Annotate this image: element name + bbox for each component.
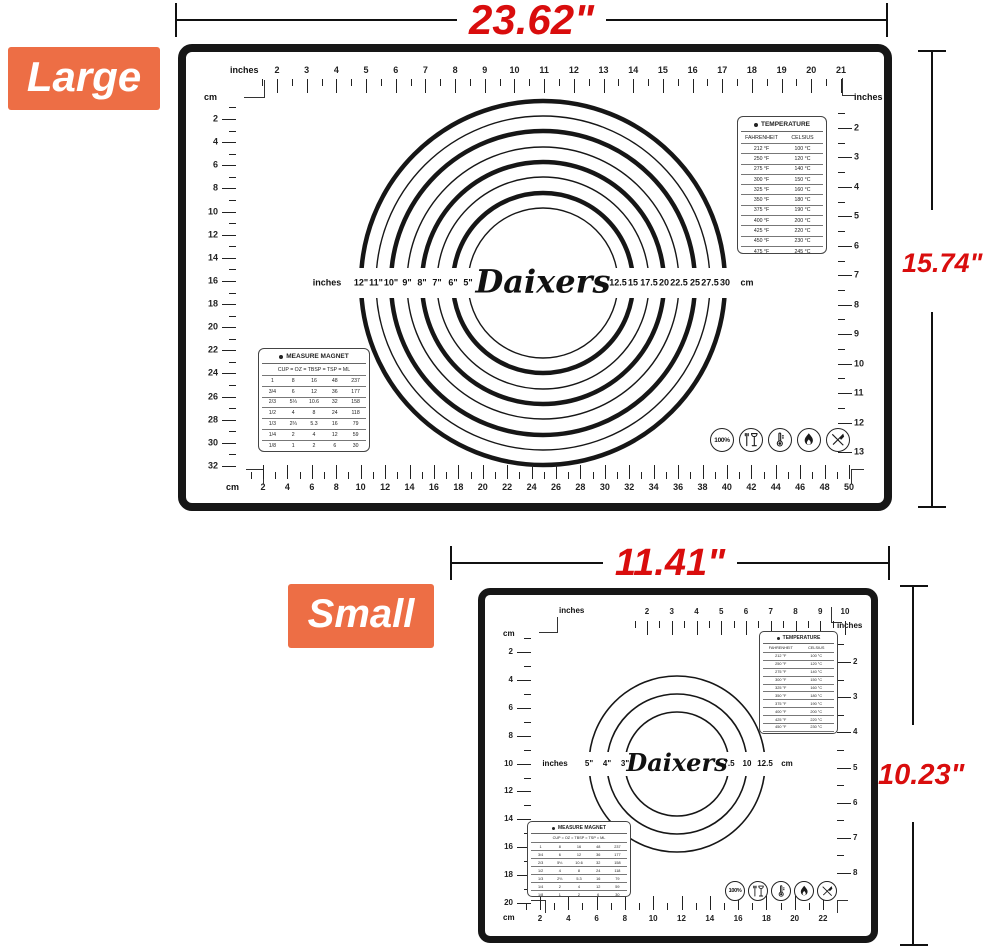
ruler-tick [222,443,236,444]
ruler-number: 6 [501,704,513,712]
ruler-tick [782,79,783,93]
circle-unit-inches: inches [542,760,567,768]
ruler-tick [574,79,575,93]
ruler-tick [837,644,844,645]
dimension-line [606,19,886,21]
ruler-tick [838,246,852,247]
ruler-number: 12 [380,483,390,492]
ruler-number: 2 [206,115,218,124]
ruler-tick [715,472,716,479]
ruler-number: 7 [853,834,865,842]
ruler-tick [524,722,531,723]
dimension-line [452,562,603,564]
small-size-tag: Small [288,584,434,648]
ruler-number: 7 [854,271,866,280]
ruler-tick [788,472,789,479]
table-row: 425 °F220 °C [741,225,823,235]
table-row: 212 °F100 °C [763,652,834,660]
ruler-tick [300,472,301,479]
ruler-tick [722,79,723,93]
table-row: 2/35⅓10.632158 [531,858,627,866]
ruler-tick [366,79,367,93]
ruler-tick [322,79,323,86]
ruler-tick [396,79,397,93]
small-pastry-mat: inches cm inches cm 5"4"3"7.51012.5inche… [478,588,878,943]
ruler-tick [222,466,236,467]
ruler-tick [838,157,852,158]
table-row: 250 °F120 °C [741,153,823,163]
heat-resistant-thermometer-icon [771,881,791,901]
ruler-tick [838,423,852,424]
ruler-number: 19 [777,66,787,75]
table-row: 425 °F220 °C [763,715,834,723]
ruler-tick [783,621,784,628]
ruler-tick [422,472,423,479]
circle-cm-label: 20 [659,279,669,288]
table-row: 450 °F230 °C [763,723,834,731]
ruler-number: 15 [658,66,668,75]
ruler-tick [837,732,851,733]
ruler-tick [617,472,618,479]
ruler-number: 4 [285,483,290,492]
ruler-tick [517,791,531,792]
table-title: TEMPERATURE [741,118,823,131]
ruler-tick [222,350,236,351]
ruler-tick [336,465,337,479]
ruler-tick [229,177,236,178]
ruler-number: 40 [722,483,732,492]
ruler-number: 6 [594,915,598,923]
ruler-tick [697,621,698,635]
height-dimension-small: 10.23" [900,585,988,946]
ruler-tick [312,465,313,479]
ruler-number: 16 [734,915,743,923]
table-column-headers: FAHRENHEITCELSIUS [763,643,834,652]
table-row: 300 °F150 °C [741,174,823,184]
ruler-tick [837,803,851,804]
ruler-tick [809,903,810,910]
ruler-tick [739,472,740,479]
ruler-number: 18 [206,300,218,309]
ruler-number: 6 [854,241,866,250]
ruler-right-inches: 2345678910111213 [836,128,866,452]
ruler-number: 8 [501,732,513,740]
ruler-tick [229,362,236,363]
ruler-tick [229,316,236,317]
ruler-tick [767,79,768,86]
ruler-tick [229,454,236,455]
ruler-number: 26 [206,392,218,401]
circle-inch-label: 12" [354,279,368,288]
ruler-tick [837,855,844,856]
ruler-number: 32 [206,462,218,471]
ruler-tick [287,465,288,479]
ruler-tick [684,621,685,628]
table-row: 1/161/21315 [262,451,366,452]
ruler-tick [524,694,531,695]
ruler-tick [693,79,694,93]
table-row: 181648237 [531,842,627,850]
table-row: 1/32⅔5.31679 [262,418,366,429]
ruler-tick [678,465,679,479]
ruler-number: 12 [854,418,866,427]
table-row: 1/24824118 [531,866,627,874]
ruler-number: 10 [854,359,866,368]
ruler-number: 14 [501,815,513,823]
ruler-number: 10 [509,66,519,75]
ruler-tick [471,472,472,479]
ruler-tick [838,113,845,114]
ruler-number: 5 [854,212,866,221]
ruler-number: 4 [566,915,570,923]
table-row: 450 °F230 °C [741,236,823,246]
ruler-number: 8 [793,608,797,616]
ruler-number: 18 [453,483,463,492]
table-title: MEASURE MAGNET [531,823,627,833]
height-value-small: 10.23" [878,761,964,790]
ruler-number: 5 [364,66,369,75]
table-row: 350 °F180 °C [741,194,823,204]
ruler-tick [825,465,826,479]
ruler-tick [672,621,673,635]
dimension-line [177,19,457,21]
ruler-tick [410,465,411,479]
table-row: 1/812630 [531,890,627,897]
ruler-tick [556,465,557,479]
circle-inch-label: 11" [369,279,383,288]
ruler-right-inches: 2345678 [835,662,865,873]
ruler-tick [524,805,531,806]
ruler-tick [833,621,834,628]
ruler-tick [724,903,725,910]
circle-cm-label: 17.5 [640,279,658,288]
ruler-tick [709,621,710,628]
ruler-tick [524,778,531,779]
ruler-tick [838,187,852,188]
ruler-tick [514,79,515,93]
ruler-tick [764,472,765,479]
ruler-number: 11 [854,389,866,398]
ruler-number: 6 [206,161,218,170]
ruler-tick [517,652,531,653]
ruler-number: 34 [649,483,659,492]
circle-cm-label: 25 [690,279,700,288]
ruler-number: 32 [624,483,634,492]
safety-icons-row: 100% [710,428,850,452]
measure-conversion-table: MEASURE MAGNETCUP = OZ = TBSP = TSP = ML… [258,348,370,452]
circle-cm-label: 15 [628,279,638,288]
ruler-tick [589,79,590,86]
ruler-tick [781,903,782,910]
ruler-number: 8 [334,483,339,492]
large-size-tag: Large [8,47,160,110]
bullet-dot-icon [777,637,780,640]
ruler-tick [653,896,654,910]
ruler-tick [751,465,752,479]
ruler-tick [446,472,447,479]
ruler-tick [737,79,738,86]
dimension-line [912,587,914,725]
ruler-number: 12 [206,230,218,239]
ruler-tick [275,472,276,479]
ruler-tick [222,258,236,259]
ruler-tick [222,142,236,143]
ruler-tick [841,79,842,93]
ruler-tick [838,172,845,173]
ruler-tick [222,188,236,189]
table-row: 1/4241259 [531,882,627,890]
circle-unit-inches: inches [313,279,342,288]
ruler-number: 28 [575,483,585,492]
ruler-tick [222,304,236,305]
ruler-tick [425,79,426,93]
ruler-tick [811,79,812,93]
ruler-number: 9 [482,66,487,75]
pastry-mat-size-diagram: 23.62" Large inches cm inches cm 12"11"1… [0,0,991,948]
ruler-number: 4 [853,728,865,736]
ruler-tick [837,715,844,716]
ruler-tick [559,79,560,86]
circle-inch-label: 8" [417,279,426,288]
100-percent-seal-icon: 100% [725,881,745,901]
table-row: 350 °F180 °C [763,691,834,699]
ruler-number: 3 [670,608,674,616]
ruler-number: 13 [599,66,609,75]
ruler-tick [837,873,851,874]
ruler-number: 18 [501,871,513,879]
ruler-tick [838,378,845,379]
ruler-tick [517,708,531,709]
ruler-left-cm: 2468101214161820222426283032 [206,119,236,466]
ruler-number: 4 [854,182,866,191]
ruler-tick [678,79,679,86]
safety-icons-row: 100% [725,881,837,901]
ruler-tick [222,373,236,374]
ruler-number: 2 [853,658,865,666]
no-sharp-objects-icon [826,428,850,452]
ruler-number: 2 [260,483,265,492]
table-row: 475 °F245 °C [763,731,834,734]
ruler-number: 30 [600,483,610,492]
ruler-number: 24 [527,483,537,492]
flame-resistant-icon [797,428,821,452]
ruler-tick [710,896,711,910]
ruler-tick [639,903,640,910]
ruler-number: 10 [501,760,513,768]
bullet-dot-icon [754,123,758,127]
ruler-top-inches: 23456789101112131415161718192021 [277,66,841,94]
ruler-tick [222,119,236,120]
circle-inch-label: 5" [585,760,593,768]
circle-inch-label: 7" [432,279,441,288]
table-row: 1/24824118 [262,407,366,418]
ruler-tick [808,621,809,628]
table-row: 181648237 [262,375,366,386]
ruler-number: 7 [423,66,428,75]
ruler-tick [229,293,236,294]
table-row: 2/35⅓10.632158 [262,397,366,408]
ruler-tick [605,465,606,479]
ruler-tick [734,621,735,628]
ruler-number: 16 [501,843,513,851]
ruler-tick [229,223,236,224]
ruler-number: 12 [677,915,686,923]
ruler-number: 48 [820,483,830,492]
ruler-tick [222,420,236,421]
ruler-number: 8 [853,869,865,877]
ruler-tick [796,79,797,86]
ruler-tick [470,79,471,86]
ruler-number: 10 [649,915,658,923]
ruler-number: 13 [854,448,866,457]
ruler-number: 3 [854,153,866,162]
circle-cm-label: 12.5 [609,279,627,288]
dimension-endbar [886,3,888,37]
ruler-tick [666,472,667,479]
ruler-number: 14 [206,253,218,262]
ruler-number: 26 [551,483,561,492]
ruler-tick [663,79,664,93]
ruler-tick [838,143,845,144]
ruler-tick [812,472,813,479]
ruler-number: 16 [429,483,439,492]
ruler-tick [826,79,827,86]
table-title: TEMPERATURE [763,633,834,643]
ruler-tick [251,472,252,479]
ruler-number: 50 [844,483,854,492]
ruler-tick [727,465,728,479]
ruler-tick [752,79,753,93]
table-row: 400 °F200 °C [741,215,823,225]
ruler-tick [229,107,236,108]
ruler-tick [495,472,496,479]
circle-cm-label: 30 [720,279,730,288]
table-row: 212 °F100 °C [741,143,823,153]
ruler-number: 12 [569,66,579,75]
table-row: 475 °F245 °C [741,246,823,254]
ruler-tick [229,269,236,270]
ruler-tick [837,838,851,839]
heat-resistant-thermometer-icon [768,428,792,452]
width-dimension-small: 11.41" [450,544,890,582]
ruler-tick [837,662,851,663]
ruler-tick [524,750,531,751]
ruler-tick [568,896,569,910]
ruler-tick [838,231,845,232]
ruler-tick [838,290,845,291]
width-dimension-large: 23.62" [175,0,888,40]
ruler-number: 10 [356,483,366,492]
ruler-number: 38 [697,483,707,492]
ruler-tick [837,750,844,751]
ruler-tick [604,79,605,93]
ruler-number: 4 [694,608,698,616]
ruler-number: 6 [744,608,748,616]
ruler-tick [845,621,846,635]
ruler-tick [690,472,691,479]
large-pastry-mat: inches cm inches cm 12"11"10"9"8"7"6"5"1… [178,44,892,511]
ruler-tick [500,79,501,86]
ruler-number: 8 [623,915,627,923]
ruler-number: 7 [769,608,773,616]
circle-cm-label: 22.5 [670,279,688,288]
flame-resistant-icon [794,881,814,901]
ruler-tick [849,465,850,479]
ruler-tick [800,465,801,479]
ruler-number: 6 [853,799,865,807]
bullet-dot-icon [279,355,283,359]
height-value-large: 15.74" [902,250,982,277]
dimension-line [912,822,914,944]
circle-inch-label: 10" [384,279,398,288]
ruler-tick [838,334,852,335]
ruler-tick [485,79,486,93]
ruler-tick [838,128,852,129]
ruler-number: 20 [806,66,816,75]
ruler-number: 18 [747,66,757,75]
ruler-number: 9 [818,608,822,616]
ruler-number: 2 [501,648,513,656]
ruler-tick [838,393,852,394]
dimension-endbar [900,585,928,587]
ruler-tick [838,349,845,350]
ruler-tick [635,621,636,628]
ruler-tick [593,472,594,479]
ruler-tick [838,452,852,453]
ruler-tick [229,431,236,432]
ruler-tick [838,305,852,306]
ruler-number: 11 [539,66,549,75]
ruler-number: 28 [206,415,218,424]
ruler-tick [544,79,545,93]
ruler-number: 5 [853,764,865,772]
no-sharp-objects-icon [817,881,837,901]
ruler-number: 8 [453,66,458,75]
ruler-tick [659,621,660,628]
ruler-tick [758,621,759,628]
circle-cm-label: 10 [743,760,752,768]
ruler-tick [618,79,619,86]
height-dimension-large: 15.74" [918,50,991,508]
temperature-conversion-table: TEMPERATUREFAHRENHEITCELSIUS212 °F100 °C… [737,116,827,254]
ruler-tick [517,680,531,681]
ruler-tick [838,319,845,320]
temperature-conversion-table: TEMPERATUREFAHRENHEITCELSIUS212 °F100 °C… [759,631,838,734]
ruler-tick [721,621,722,635]
ruler-tick [526,903,527,910]
brand-logo: Daixers [476,265,611,297]
ruler-number: 6 [309,483,314,492]
ruler-tick [292,79,293,86]
food-safe-glass-fork-icon [748,881,768,901]
100-percent-seal-icon: 100% [710,428,734,452]
ruler-tick [838,202,845,203]
table-row: 375 °F190 °C [763,699,834,707]
ruler-number: 10 [841,608,850,616]
ruler-number: 36 [673,483,683,492]
table-column-headers: CUP = OZ = TBSP = TSP = ML [531,833,627,842]
ruler-tick [411,79,412,86]
ruler-number: 4 [206,138,218,147]
dimension-line [931,52,933,210]
ruler-number: 20 [478,483,488,492]
table-row: 1/4241259 [262,429,366,440]
ruler-tick [667,903,668,910]
table-row: 300 °F150 °C [763,676,834,684]
ruler-number: 24 [206,369,218,378]
ruler-bottom-cm: 2468101214161820222426283032343638404244… [263,464,849,492]
ruler-number: 2 [854,124,866,133]
